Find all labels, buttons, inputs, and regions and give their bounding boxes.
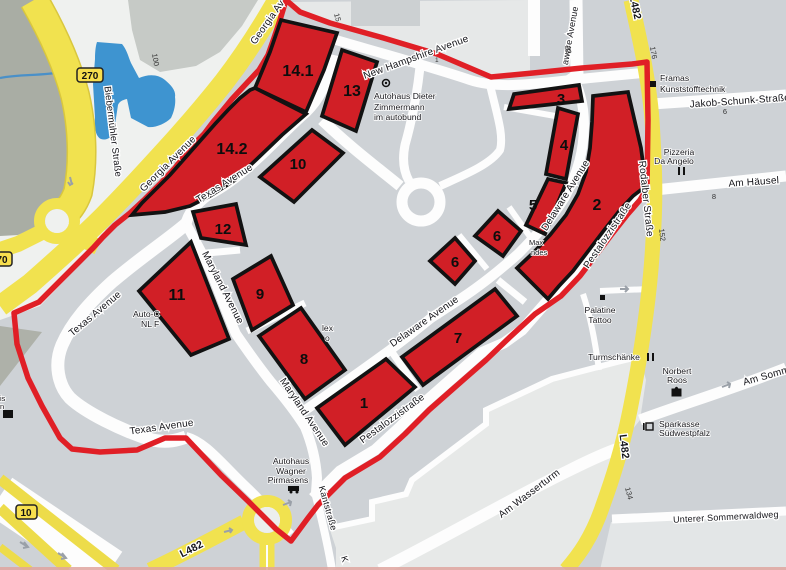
svg-text:1: 1 [435, 57, 439, 64]
svg-text:im autobund: im autobund [374, 112, 422, 122]
svg-text:3: 3 [557, 91, 565, 108]
svg-text:Pirmasens: Pirmasens [268, 475, 309, 485]
svg-text:9: 9 [256, 286, 264, 303]
svg-text:4: 4 [560, 137, 569, 154]
svg-text:Tattoo: Tattoo [588, 315, 612, 325]
svg-text:lex: lex [322, 323, 334, 333]
svg-text:14.1: 14.1 [282, 63, 313, 80]
svg-text:Framas: Framas [660, 73, 689, 83]
svg-text:Turmschänke: Turmschänke [588, 352, 640, 362]
svg-text:11: 11 [169, 287, 186, 304]
svg-text:Auto-C: Auto-C [133, 309, 160, 319]
svg-text:8: 8 [712, 192, 716, 201]
svg-text:6: 6 [723, 107, 727, 116]
svg-text:12: 12 [215, 221, 232, 238]
svg-text:Palatine: Palatine [584, 305, 615, 315]
svg-text:23: 23 [563, 45, 573, 55]
svg-text:10: 10 [290, 156, 307, 173]
svg-text:o: o [325, 333, 330, 343]
svg-text:NL F: NL F [141, 319, 159, 329]
svg-text:Autohaus Dieter: Autohaus Dieter [374, 91, 436, 101]
svg-text:10: 10 [20, 508, 32, 519]
svg-text:70: 70 [0, 255, 8, 266]
svg-text:ndes: ndes [531, 248, 548, 257]
svg-text:Da Angelo: Da Angelo [654, 156, 694, 166]
svg-text:2: 2 [593, 197, 602, 214]
svg-text:Südwestpfalz: Südwestpfalz [659, 428, 710, 438]
svg-text:1: 1 [360, 395, 368, 412]
svg-text:6: 6 [493, 228, 501, 245]
svg-text:13: 13 [343, 83, 361, 100]
svg-text:152: 152 [657, 228, 667, 242]
svg-text:6: 6 [451, 254, 459, 271]
svg-text:14.2: 14.2 [216, 141, 247, 158]
svg-text:5: 5 [529, 197, 537, 214]
svg-text:Max: Max [529, 238, 543, 247]
svg-text:n: n [0, 402, 4, 411]
svg-text:8: 8 [300, 351, 308, 368]
svg-text:Kunststofftechnik: Kunststofftechnik [660, 84, 726, 94]
svg-text:Zimmermann: Zimmermann [374, 102, 425, 112]
svg-text:270: 270 [82, 71, 99, 82]
svg-text:Autohaus: Autohaus [273, 456, 309, 466]
svg-text:7: 7 [454, 330, 462, 347]
svg-text:Roos: Roos [667, 375, 687, 385]
